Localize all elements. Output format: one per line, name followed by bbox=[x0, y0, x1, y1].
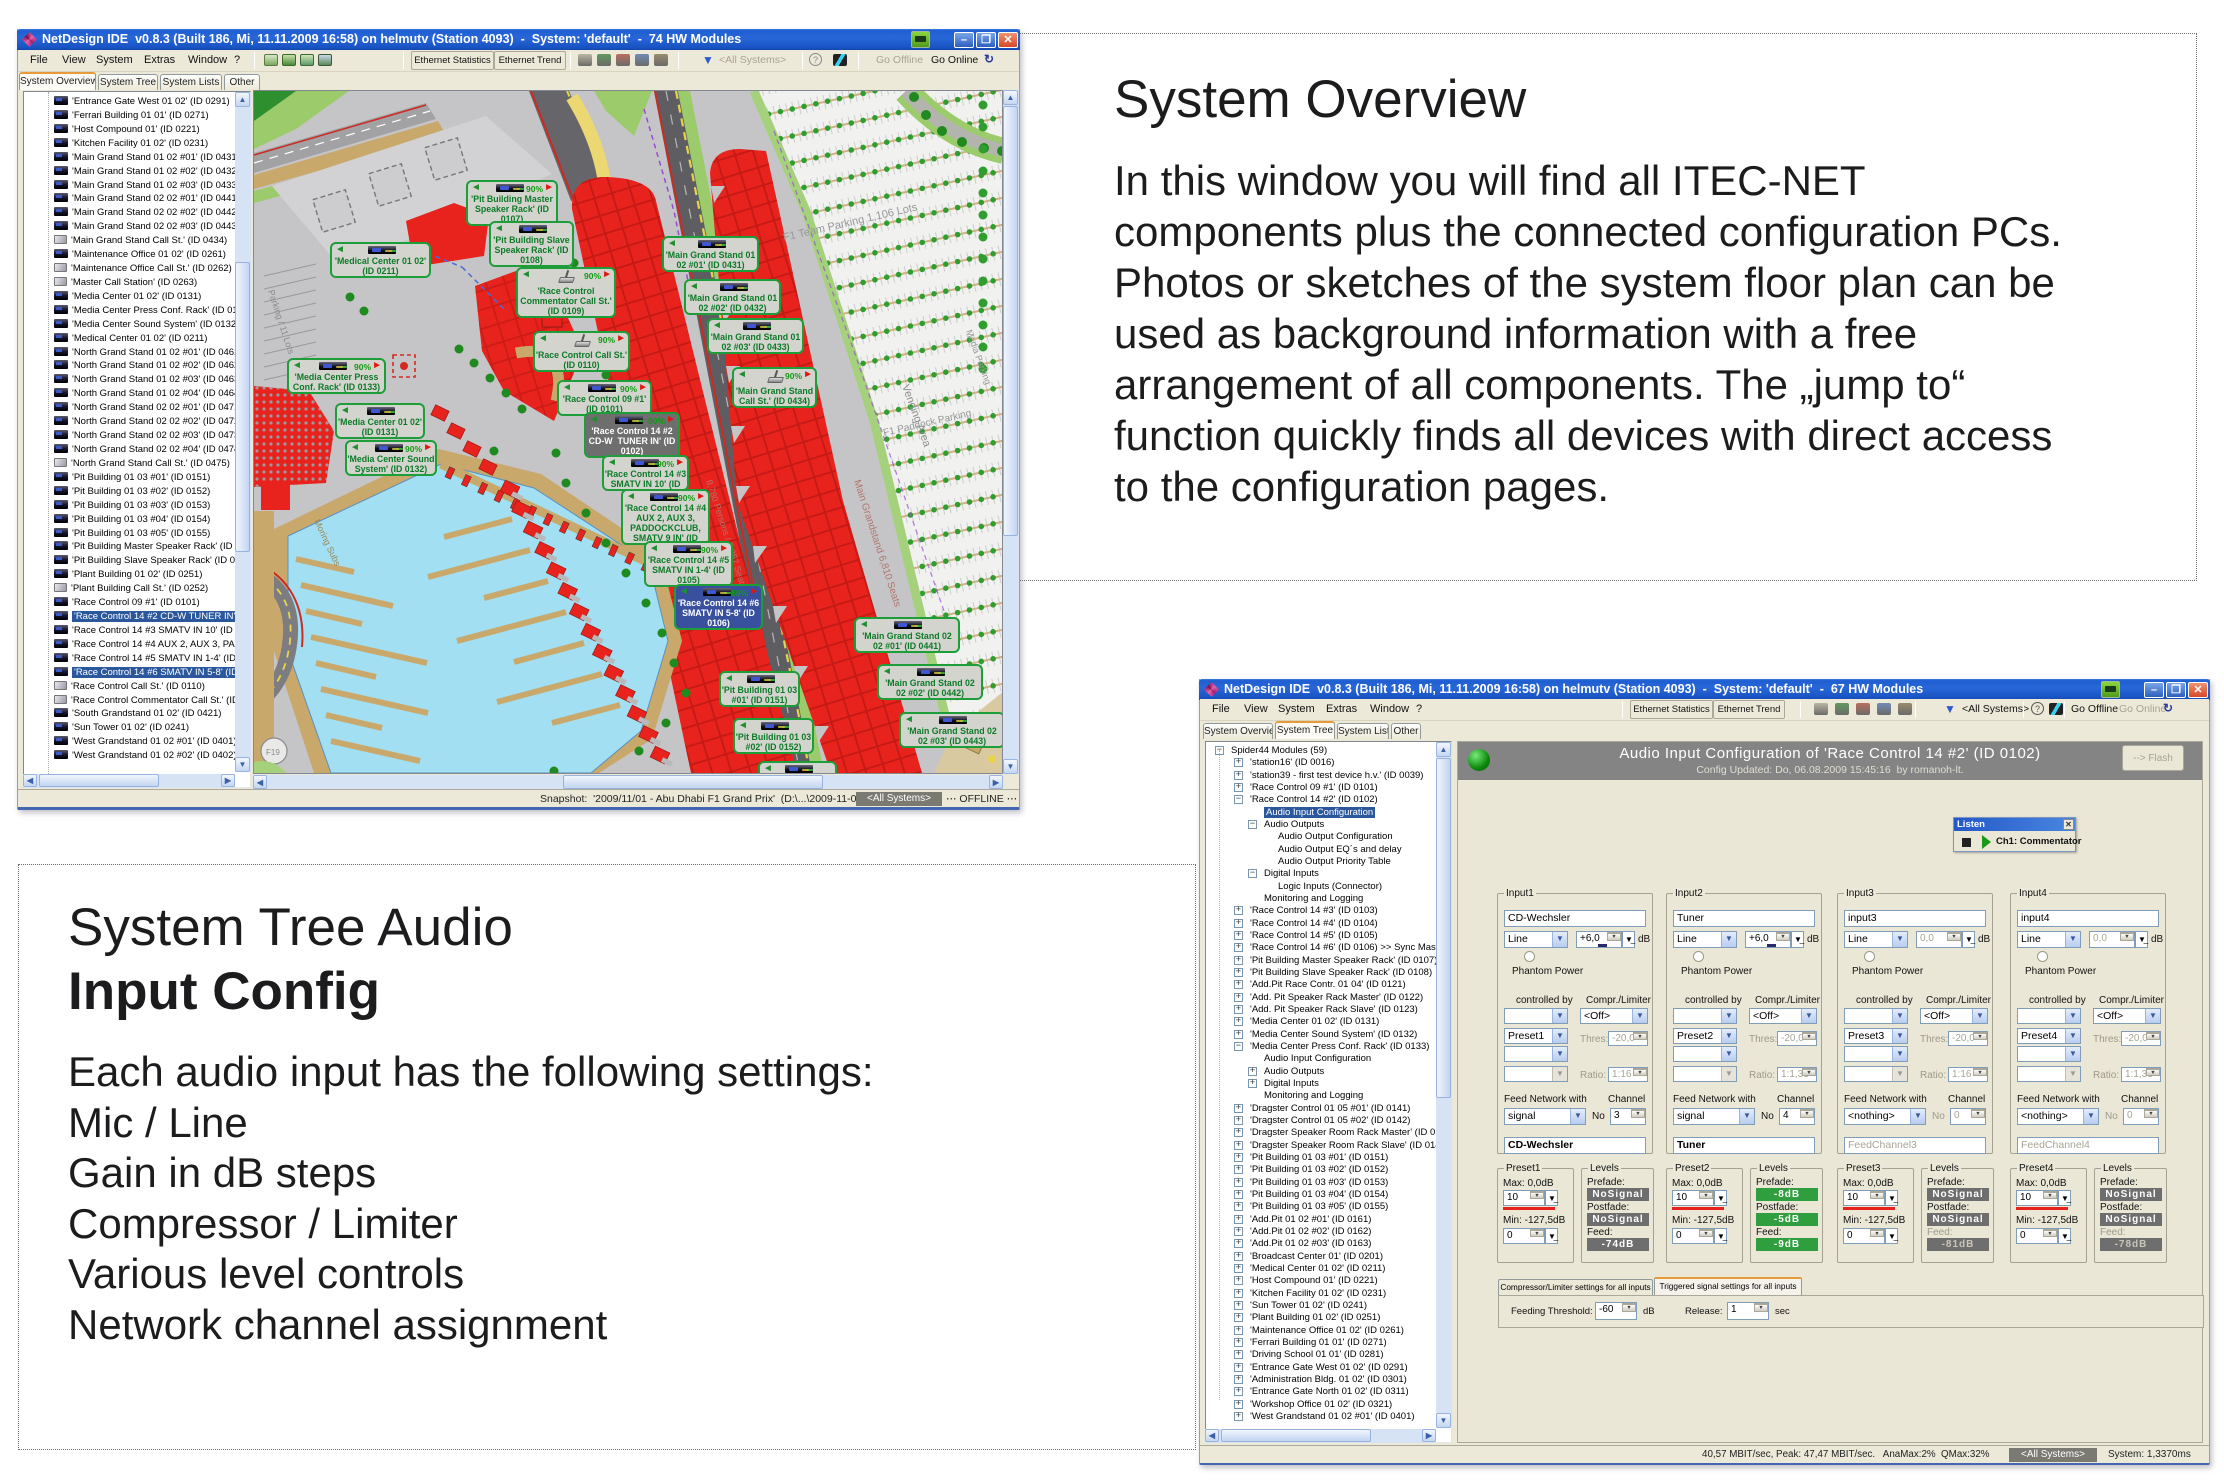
svg-text:F19: F19 bbox=[266, 748, 280, 757]
